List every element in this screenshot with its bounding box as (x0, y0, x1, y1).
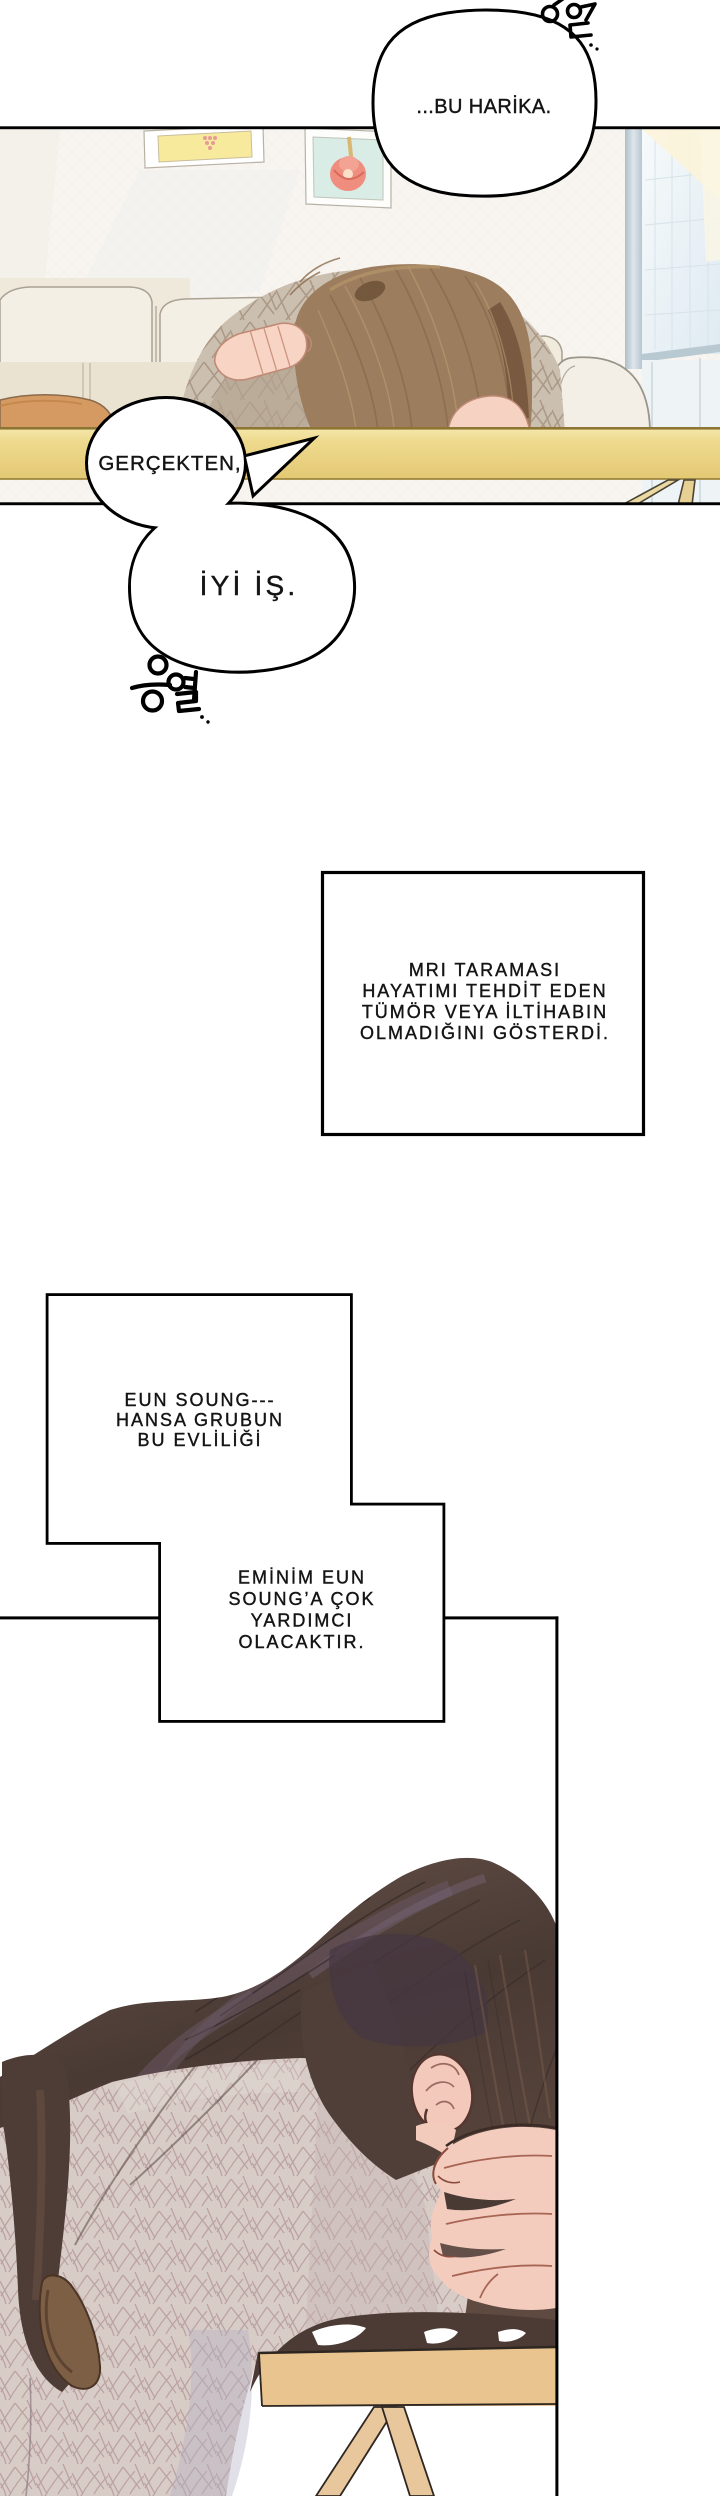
svg-text:İYİ İŞ.: İYİ İŞ. (200, 570, 299, 601)
svg-text:HAYATIMI TEHDİT EDEN: HAYATIMI TEHDİT EDEN (362, 981, 607, 1001)
svg-text:MRI TARAMASI: MRI TARAMASI (409, 960, 561, 980)
svg-text:OLACAKTIR.: OLACAKTIR. (238, 1632, 365, 1652)
svg-text:BU EVLİLİĞİ: BU EVLİLİĞİ (137, 1429, 262, 1450)
svg-text:TÜMÖR VEYA İLTİHABIN: TÜMÖR VEYA İLTİHABIN (362, 1002, 608, 1022)
svg-text:HANSA GRUBUN: HANSA GRUBUN (116, 1410, 284, 1430)
svg-text:...BU HARİKA.: ...BU HARİKA. (416, 95, 551, 118)
svg-text:OLMADIĞINI GÖSTERDİ.: OLMADIĞINI GÖSTERDİ. (360, 1022, 610, 1043)
svg-text:GERÇEKTEN,: GERÇEKTEN, (98, 452, 241, 475)
svg-text:EUN SOUNG---: EUN SOUNG--- (125, 1390, 276, 1410)
svg-text:YARDIMCI: YARDIMCI (251, 1611, 354, 1631)
svg-text:SOUNG’A ÇOK: SOUNG’A ÇOK (228, 1589, 375, 1609)
svg-text:EMİNİM EUN: EMİNİM EUN (238, 1568, 366, 1588)
